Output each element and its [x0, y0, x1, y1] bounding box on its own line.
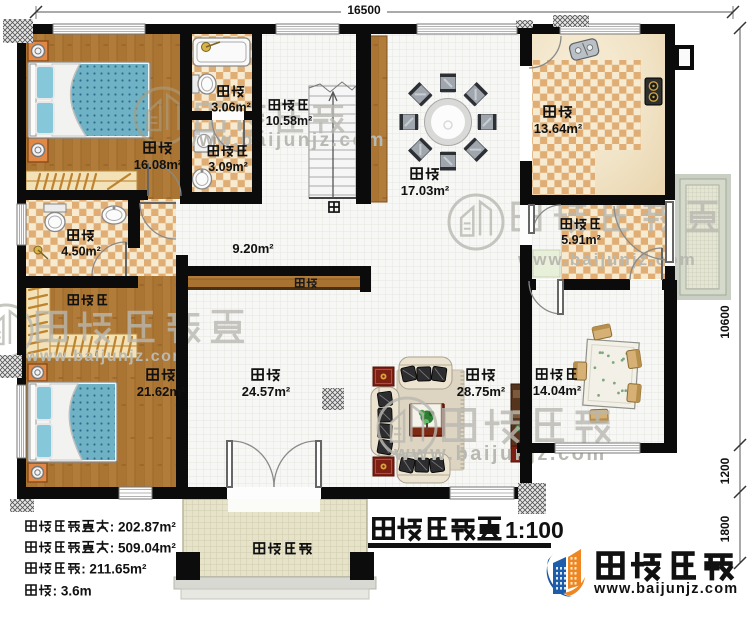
svg-text:10.58m²: 10.58m²	[266, 114, 313, 128]
svg-text:4.50m²: 4.50m²	[61, 245, 101, 259]
svg-text:www.baijunjz.com: www.baijunjz.com	[181, 130, 386, 151]
svg-text:: 211.65m²: : 211.65m²	[81, 562, 147, 577]
svg-text:21.62m²: 21.62m²	[137, 384, 186, 399]
svg-text:16500: 16500	[347, 3, 381, 17]
svg-text:24.57m²: 24.57m²	[242, 384, 291, 399]
svg-text:1:100: 1:100	[505, 517, 564, 543]
svg-text:: 3.6m: : 3.6m	[53, 584, 92, 599]
svg-text:1200: 1200	[718, 457, 732, 484]
svg-text:17.03m²: 17.03m²	[401, 183, 450, 198]
svg-text:28.75m²: 28.75m²	[457, 384, 506, 399]
svg-text:1800: 1800	[718, 515, 732, 542]
svg-text:16.08m²: 16.08m²	[134, 157, 183, 172]
svg-text:www.baijunjz.com: www.baijunjz.com	[593, 581, 738, 597]
svg-text:3.06m²: 3.06m²	[211, 101, 251, 115]
svg-text:14.04m²: 14.04m²	[533, 383, 582, 398]
svg-text:9.20m²: 9.20m²	[232, 241, 274, 256]
svg-text:13.64m²: 13.64m²	[534, 121, 583, 136]
svg-text:3.09m²: 3.09m²	[208, 160, 248, 174]
svg-text:: 202.87m²: : 202.87m²	[110, 520, 177, 535]
svg-text:: 509.04m²: : 509.04m²	[110, 541, 177, 556]
svg-text:www.baijunjz.com: www.baijunjz.com	[25, 348, 188, 365]
svg-text:5.91m²: 5.91m²	[561, 233, 601, 247]
svg-text:10600: 10600	[718, 305, 732, 339]
